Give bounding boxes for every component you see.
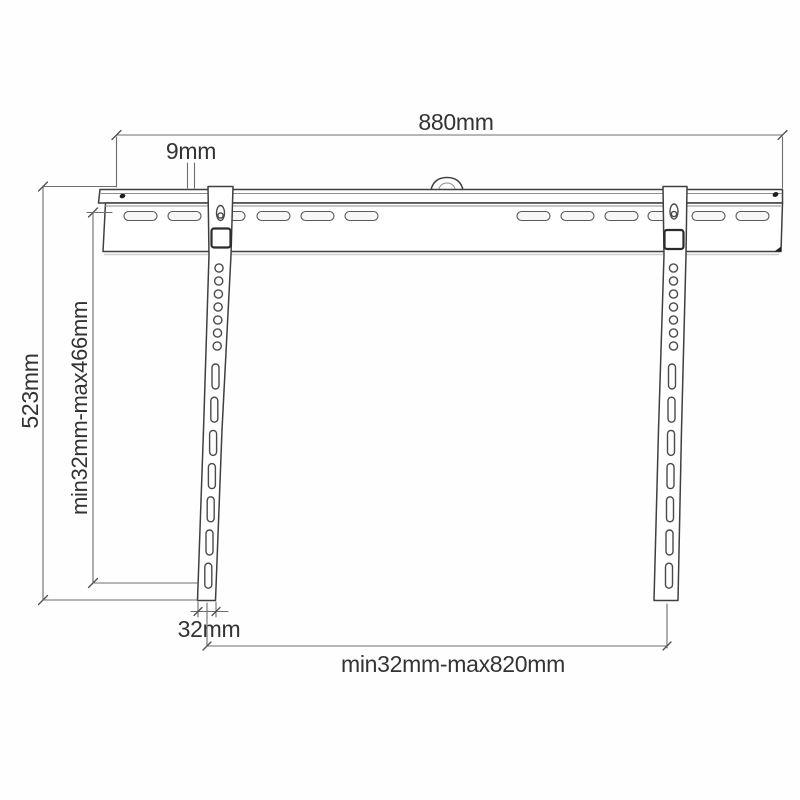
wall-mount-dimension-diagram: 880mm 9mm 523mm min32mm-max466mm	[0, 0, 800, 800]
rail-slot	[345, 212, 378, 221]
right-arm-slot	[667, 464, 674, 489]
left-arm-slot	[210, 430, 217, 455]
rail-slot	[301, 212, 334, 221]
left-arm-slot	[208, 464, 215, 489]
dim-horizontal-hole-range-label: min32mm-max820mm	[341, 651, 565, 677]
left-arm-slot	[205, 563, 212, 588]
left-arm-hole	[213, 329, 221, 337]
right-arm-hole	[669, 342, 677, 350]
right-arm-hole	[669, 277, 677, 285]
rail-slot	[257, 212, 290, 221]
left-arm-hole	[214, 303, 222, 311]
diagram-canvas: 880mm 9mm 523mm min32mm-max466mm	[0, 0, 800, 800]
dim-vertical-hole-range-label: min32mm-max466mm	[67, 301, 92, 515]
rail-slot	[736, 212, 769, 221]
right-arm-square-hole	[665, 230, 684, 249]
dim-horizontal-hole-range: min32mm-max820mm	[203, 603, 671, 677]
left-arm-hole	[215, 277, 223, 285]
right-arm-hole	[669, 329, 677, 337]
right-arm-slot	[666, 563, 673, 588]
rail-top-bump	[431, 178, 463, 191]
rail-slot	[124, 212, 157, 221]
dim-hook-depth-label: 9mm	[166, 138, 216, 164]
left-arm-hole	[215, 264, 223, 272]
rail-slot	[168, 212, 201, 221]
right-arm-slot	[669, 364, 676, 389]
left-arm-hole	[214, 316, 222, 324]
dim-arm-width: 32mm	[178, 602, 241, 642]
left-arm-hole	[214, 290, 222, 298]
left-arm-hole	[213, 342, 221, 350]
right-arm-keyhole-circle	[671, 211, 676, 216]
right-arm-slot	[668, 397, 675, 422]
left-arm-slot	[206, 530, 213, 555]
right-arm-slot	[667, 497, 674, 522]
left-arm-slot	[212, 364, 219, 389]
left-arm-square-hole	[212, 229, 231, 248]
right-arm-hole	[669, 303, 677, 311]
rail-slot	[561, 212, 594, 221]
rail-slot	[692, 212, 725, 221]
left-arm-slot	[207, 497, 214, 522]
right-arm-hole	[669, 290, 677, 298]
left-arm-keyhole-circle	[218, 213, 223, 218]
dim-arm-width-label: 32mm	[178, 616, 241, 642]
dim-total-height-label: 523mm	[17, 353, 43, 428]
right-arm-slot	[668, 430, 675, 455]
dim-total-width-label: 880mm	[418, 109, 493, 135]
right-arm-hole	[669, 264, 677, 272]
right-arm-slot	[666, 530, 673, 555]
left-arm-slot	[211, 397, 218, 422]
right-arm-hole	[669, 316, 677, 324]
rail-slot	[517, 212, 550, 221]
dim-vertical-hole-range: min32mm-max466mm	[67, 208, 197, 588]
rail-slot	[605, 212, 638, 221]
dim-hook-depth: 9mm	[166, 138, 216, 188]
